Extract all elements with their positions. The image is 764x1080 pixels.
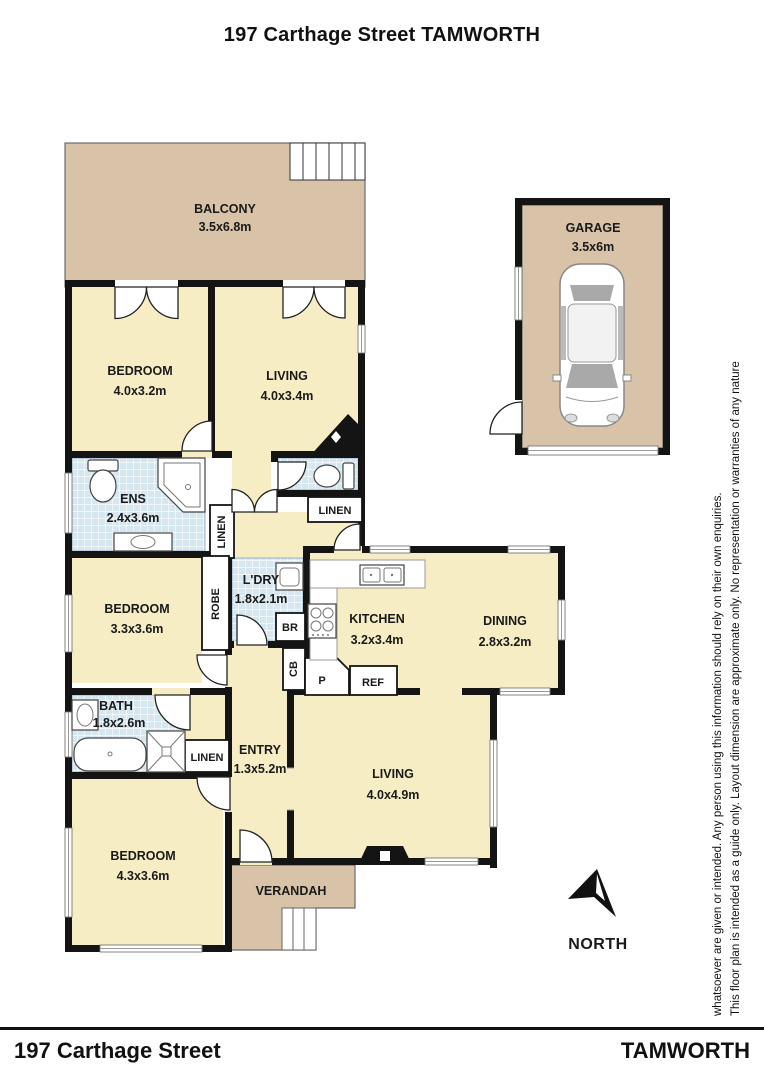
- footer-divider: [0, 1027, 764, 1030]
- window: [65, 712, 72, 757]
- room-dims: 3.5x6m: [572, 240, 614, 254]
- room-label: VERANDAH: [256, 884, 327, 898]
- room-label: BALCONY: [194, 202, 256, 216]
- room-label: BATH: [99, 699, 133, 713]
- bathtub-icon: [74, 738, 146, 771]
- room-dims: 1.8x2.1m: [235, 592, 288, 606]
- closet-label: LINEN: [191, 752, 224, 764]
- toilet-icon: [88, 460, 118, 502]
- north-arrow-icon: [568, 869, 616, 917]
- window: [508, 546, 550, 553]
- window: [100, 945, 202, 952]
- window: [425, 858, 478, 865]
- window: [358, 325, 365, 353]
- room-dims: 4.3x3.6m: [117, 869, 170, 883]
- window: [65, 595, 72, 652]
- laundry-tub-icon: [276, 563, 303, 590]
- window: [490, 740, 497, 827]
- room-dims: 3.2x3.4m: [351, 633, 404, 647]
- floor-plan-container: BALCONY 3.5x6.8m BEDROOM 4.0x3.2m LIVING…: [0, 0, 764, 1025]
- bath-lobby-floor: [185, 695, 225, 740]
- footer-street: 197 Carthage Street: [14, 1038, 221, 1064]
- fireplace-icon: [358, 846, 412, 865]
- room-label: ENS: [120, 492, 146, 506]
- room-dims: 2.4x3.6m: [107, 511, 160, 525]
- closet-label: BR: [282, 622, 298, 634]
- room-label: ENTRY: [239, 743, 282, 757]
- room-label: L'DRY: [243, 573, 280, 587]
- cooktop-icon: [308, 604, 336, 638]
- room-dims: 4.0x4.9m: [367, 788, 420, 802]
- window: [65, 828, 72, 917]
- disclaimer-line: whatsoever are given or intended. Any pe…: [709, 276, 727, 1016]
- floor-plan: BALCONY 3.5x6.8m BEDROOM 4.0x3.2m LIVING…: [0, 0, 764, 1020]
- closet-label: CB: [288, 661, 300, 677]
- window: [65, 473, 72, 533]
- window: [500, 688, 550, 695]
- room-label: LIVING: [372, 767, 414, 781]
- room-dims: 4.0x3.4m: [261, 389, 314, 403]
- room-dims: 3.3x3.6m: [111, 622, 164, 636]
- room-dims: 2.8x3.2m: [479, 635, 532, 649]
- room-dims: 1.8x2.6m: [93, 716, 146, 730]
- north-label: NORTH: [568, 936, 627, 953]
- room-dims: 4.0x3.2m: [114, 384, 167, 398]
- garage-door: [528, 446, 658, 455]
- room-label: BEDROOM: [107, 364, 172, 378]
- closet-label: LINEN: [319, 505, 352, 517]
- room-label: KITCHEN: [349, 612, 405, 626]
- bedroom2-floor: [72, 558, 202, 683]
- window: [515, 267, 522, 320]
- room-label: GARAGE: [566, 221, 621, 235]
- car-icon: [553, 264, 631, 426]
- room-dims: 3.5x6.8m: [199, 220, 252, 234]
- closet-label: P: [318, 675, 325, 687]
- verandah-steps-icon: [282, 908, 316, 950]
- disclaimer-text: whatsoever are given or intended. Any pe…: [709, 276, 745, 1016]
- closet-label: REF: [362, 677, 384, 689]
- room-label: BEDROOM: [104, 602, 169, 616]
- room-label: LIVING: [266, 369, 308, 383]
- disclaimer-line: This floor plan is intended as a guide o…: [727, 276, 745, 1016]
- window: [558, 600, 565, 640]
- closet-label: LINEN: [216, 515, 228, 548]
- sink-icon: [360, 565, 404, 585]
- wc-toilet-icon: [314, 463, 354, 489]
- pantry-closet: [305, 658, 349, 695]
- balcony-stairs-icon: [290, 143, 365, 180]
- door-arc: [490, 402, 522, 434]
- room-label: BEDROOM: [110, 849, 175, 863]
- room-dims: 1.3x5.2m: [234, 762, 287, 776]
- closet-label: ROBE: [210, 588, 222, 620]
- shower-icon: [147, 731, 185, 772]
- footer-city: TAMWORTH: [621, 1038, 750, 1064]
- room-label: DINING: [483, 614, 527, 628]
- window: [370, 546, 410, 553]
- vanity-icon: [114, 533, 172, 551]
